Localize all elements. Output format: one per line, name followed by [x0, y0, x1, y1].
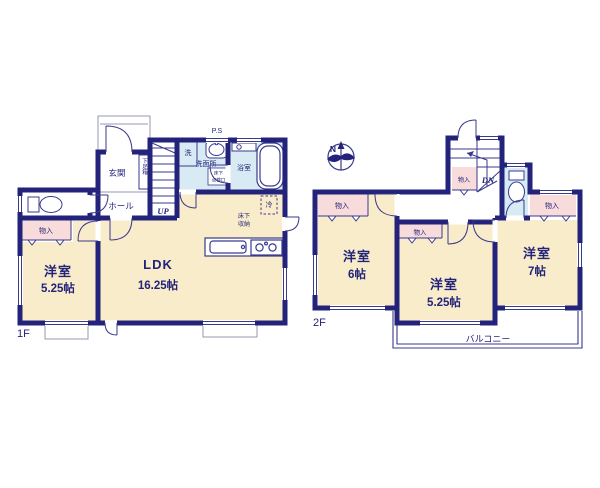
label-room-middle-name: 洋室 [430, 277, 458, 292]
compass-north-arrow [338, 141, 345, 149]
label-room-west-name: 洋室 [44, 264, 72, 279]
label-underfloor-storage-1: 床下 [238, 212, 250, 220]
label-room-left-size: 6帖 [348, 267, 366, 281]
label-floor-2f: 2F [313, 317, 326, 329]
bath-counter [232, 143, 256, 151]
label-fridge: 冷 [266, 200, 273, 209]
label-pipe-space: P.S [212, 128, 223, 135]
toilet-2f [509, 171, 525, 202]
label-floor-1f: 1F [17, 328, 30, 340]
stairs-1f [152, 143, 175, 203]
label-ldk-name: LDK [143, 257, 173, 272]
label-laundry: 洗 [185, 148, 192, 157]
compass: N [327, 141, 355, 170]
label-compass-north: N [330, 144, 336, 154]
room-2f-west-7 [497, 220, 578, 306]
label-hall: ホール [108, 201, 134, 211]
label-underfloor-storage-2: 収納 [238, 220, 250, 228]
label-washroom: 洗面所 [196, 159, 217, 168]
floorplan-1f: P.S 洗 洗面所 床下 点検口 浴室 玄関 下足箱 ホール UP 物入 冷 床… [17, 116, 299, 340]
floorplan-svg: P.S 洗 洗面所 床下 点検口 浴室 玄関 下足箱 ホール UP 物入 冷 床… [0, 0, 600, 488]
label-closet-stair: 物入 [458, 176, 470, 184]
label-room-middle-size: 5.25帖 [427, 295, 461, 309]
label-room-left-name: 洋室 [343, 249, 371, 264]
label-entrance: 玄関 [108, 168, 125, 178]
deck-west [45, 325, 88, 339]
label-bathroom: 浴室 [237, 163, 251, 172]
label-closet-left: 物入 [335, 201, 349, 210]
washroom-sink [206, 141, 227, 158]
toilet-1f [28, 197, 62, 213]
label-balcony: バルコニー [466, 334, 511, 344]
label-closet-middle: 物入 [414, 228, 428, 237]
label-room-west-size: 5.25帖 [41, 281, 75, 295]
kitchen-counter [205, 238, 283, 256]
label-shoe-cabinet: 下足箱 [141, 158, 148, 176]
room-1f-ldk [100, 194, 283, 321]
label-closet-right: 物入 [545, 201, 559, 210]
label-ldk-size: 16.25帖 [138, 278, 179, 292]
label-room-right-size: 7帖 [528, 264, 546, 278]
floorplan-canvas: P.S 洗 洗面所 床下 点検口 浴室 玄関 下足箱 ホール UP 物入 冷 床… [0, 0, 600, 488]
label-room-right-name: 洋室 [523, 246, 551, 261]
label-underfloor-hatch-2: 点検口 [212, 177, 226, 184]
floorplan-2f: N DN 物入 物入 物入 物入 洋室 6帖 洋室 5.25帖 洋室 7帖 バル… [312, 120, 583, 348]
label-stairs-down: DN [481, 175, 495, 185]
label-underfloor-hatch-1: 床下 [214, 170, 224, 177]
deck-ldk [203, 325, 257, 337]
label-stairs-up: UP [157, 206, 169, 216]
bathtub [257, 143, 283, 189]
label-closet-1f: 物入 [39, 226, 53, 235]
